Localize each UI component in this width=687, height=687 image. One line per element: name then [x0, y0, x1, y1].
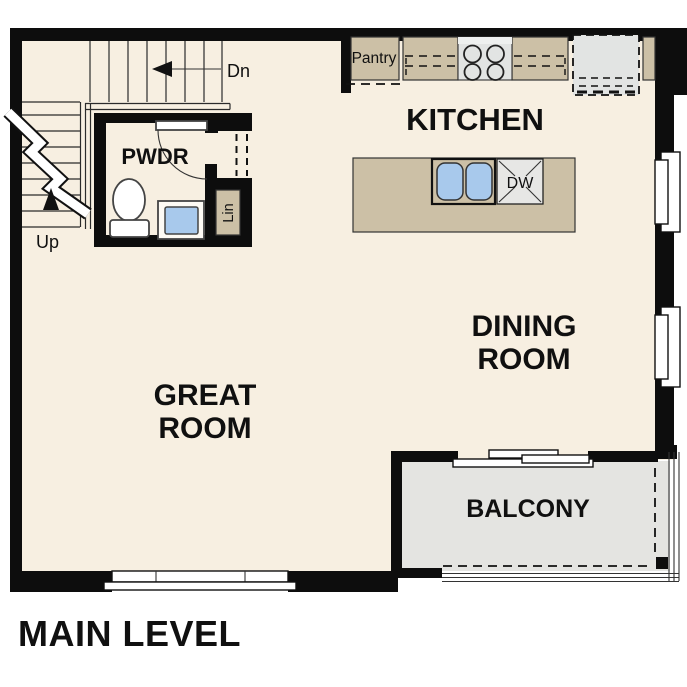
dishwasher-icon: DW [497, 159, 543, 204]
kitchen-label: KITCHEN [406, 102, 544, 137]
door-leaf [156, 121, 207, 130]
wall-kitchen-stub [341, 41, 351, 93]
stairs-up-label: Up [36, 232, 59, 252]
wall-right [655, 33, 674, 457]
floor-plan-svg: Dn Up Lin PWDR Pantry [0, 0, 687, 687]
wall-pwdr-left [94, 113, 106, 247]
floor-plan-page: Dn Up Lin PWDR Pantry [0, 0, 687, 687]
stove-icon [458, 37, 512, 80]
wall-balcony-left [391, 451, 402, 572]
balcony-label: BALCONY [466, 495, 590, 523]
great-room-label-line1: GREAT [154, 379, 257, 412]
wall-linen-right [240, 190, 252, 247]
counter-segment [403, 37, 458, 80]
wall-balcony-bottom-stub [395, 568, 442, 578]
counter-segment [512, 37, 568, 80]
window-bottom [104, 571, 296, 590]
dining-room-label-line1: DINING [472, 310, 577, 343]
great-room-label-line2: ROOM [158, 412, 251, 445]
window-right-upper [655, 152, 680, 232]
dining-room-label-line2: ROOM [477, 343, 570, 376]
wall-bottom-left [10, 571, 112, 592]
toilet-bowl-icon [113, 179, 145, 221]
linen-label: Lin [221, 203, 237, 222]
refrigerator-icon [573, 35, 639, 95]
window-right-lower [655, 307, 680, 387]
toilet-tank-icon [110, 220, 149, 237]
counter-segment [643, 37, 655, 80]
powder-room-label: PWDR [121, 144, 188, 169]
wall-corner-tr [655, 28, 687, 95]
plan-title: MAIN LEVEL [18, 613, 241, 654]
wall-pwdr-right [205, 164, 217, 247]
pantry-label: Pantry [352, 50, 397, 67]
wall-balcony-top-right [588, 451, 658, 462]
kitchen-sink-icon [432, 159, 495, 204]
balcony-post [656, 557, 668, 569]
stairs-down-label: Dn [227, 61, 250, 81]
sink-basin-icon [165, 207, 198, 234]
dishwasher-label: DW [507, 175, 535, 192]
wall-linen-top [205, 178, 252, 190]
wall-bottom-mid [288, 571, 398, 592]
